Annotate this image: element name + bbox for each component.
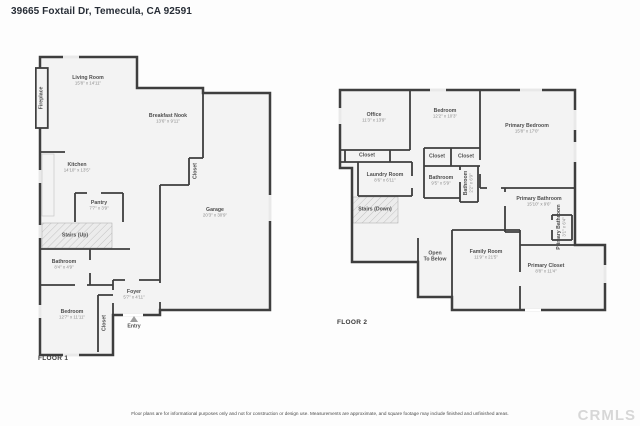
- entry-marker-icon: [130, 316, 138, 322]
- crmls-watermark: CRMLS: [578, 407, 636, 424]
- floor1-tag: FLOOR 1: [38, 355, 68, 362]
- floor1-walls: [35, 55, 275, 370]
- floor2-tag: FLOOR 2: [337, 319, 367, 326]
- floor2-plan: Office11'3" x 13'9"Bedroom12'2" x 10'3"P…: [335, 80, 625, 335]
- disclaimer-text: Floor plans are for informational purpos…: [131, 412, 508, 417]
- floor2-walls: [335, 80, 625, 335]
- page-title: 39665 Foxtail Dr, Temecula, CA 92591: [11, 6, 192, 17]
- floor1-plan: Living Room15'8" x 14'11"Breakfast Nook1…: [35, 55, 275, 370]
